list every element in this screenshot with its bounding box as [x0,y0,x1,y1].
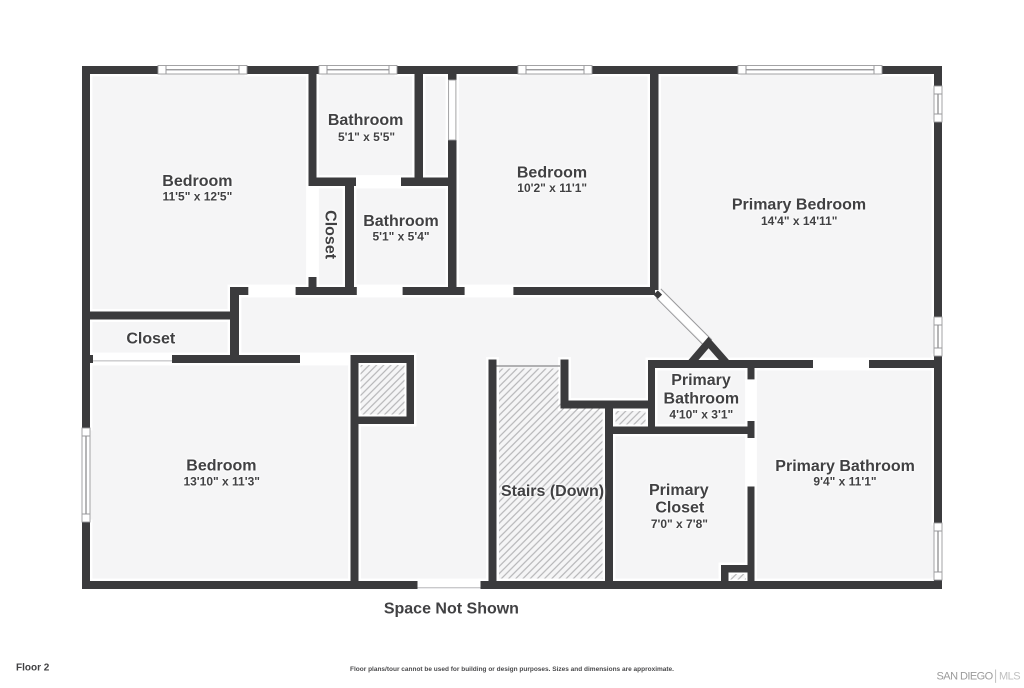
svg-text:Bedroom: Bedroom [162,173,232,190]
svg-text:9'4" x 11'1": 9'4" x 11'1" [813,475,876,489]
svg-text:Stairs (Down): Stairs (Down) [501,483,604,500]
svg-text:Closet: Closet [126,330,176,347]
svg-text:10'2" x 11'1": 10'2" x 11'1" [517,181,587,195]
svg-text:Bathroom: Bathroom [363,213,439,230]
svg-text:Primary Bathroom: Primary Bathroom [775,458,915,475]
svg-text:Primary Bedroom: Primary Bedroom [732,197,866,214]
svg-text:Closet: Closet [322,210,339,260]
svg-text:Space Not Shown: Space Not Shown [384,601,519,618]
svg-text:13'10" x 11'3": 13'10" x 11'3" [183,475,259,489]
svg-text:Bedroom: Bedroom [517,165,587,182]
svg-text:11'5" x 12'5": 11'5" x 12'5" [162,190,232,204]
svg-text:Bathroom: Bathroom [328,112,404,129]
svg-text:Closet: Closet [655,500,705,517]
svg-text:5'1" x 5'4": 5'1" x 5'4" [372,230,429,244]
svg-text:Bedroom: Bedroom [186,458,256,475]
svg-text:Primary: Primary [649,482,709,499]
svg-text:Primary: Primary [671,372,731,389]
svg-text:SAN DIEGO│MLS: SAN DIEGO│MLS [937,669,1021,684]
svg-text:14'4" x 14'11": 14'4" x 14'11" [761,214,837,228]
svg-text:5'1" x 5'5": 5'1" x 5'5" [338,130,395,144]
svg-text:Floor plans/tour cannot be use: Floor plans/tour cannot be used for buil… [350,666,674,673]
svg-text:7'0" x 7'8": 7'0" x 7'8" [651,517,708,531]
svg-text:4'10" x 3'1": 4'10" x 3'1" [669,407,733,421]
svg-text:Bathroom: Bathroom [664,391,740,408]
svg-text:Floor 2: Floor 2 [16,663,50,674]
